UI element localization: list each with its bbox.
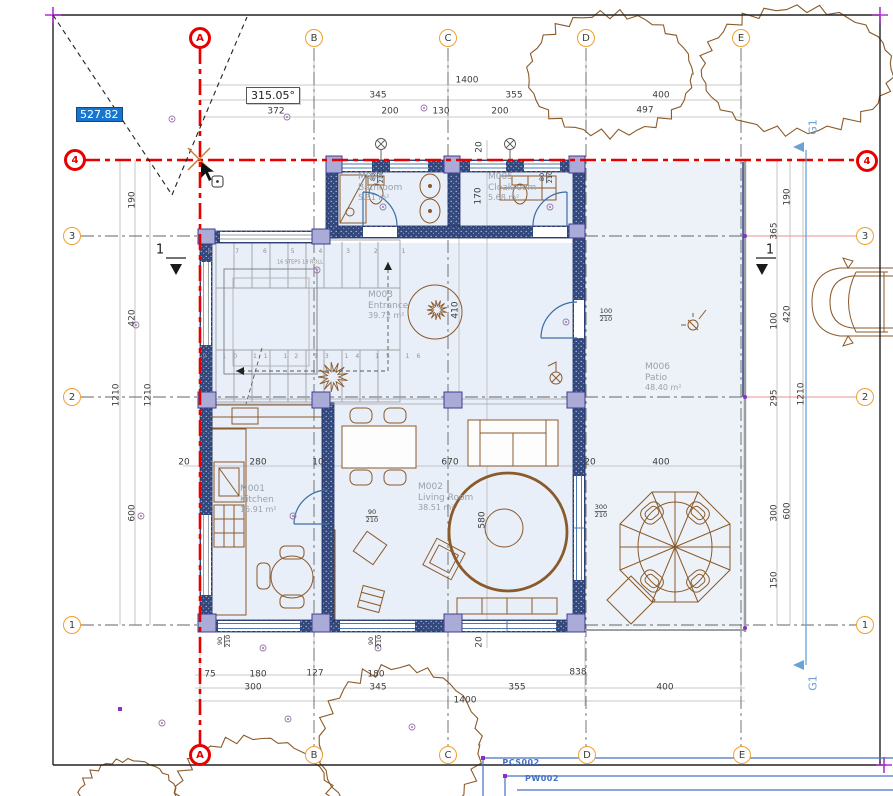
construction-label: PCS002 xyxy=(502,759,539,767)
dimension-label: 600 xyxy=(784,502,793,519)
room-label-M006: M006Patio48.40 m² xyxy=(645,362,681,393)
room-area: 5.31 m² xyxy=(358,193,402,202)
grid-bubble-B[interactable]: B xyxy=(305,29,323,47)
dimension-label: 10 xyxy=(312,459,323,468)
room-label-M002: M002Living Room38.51 m² xyxy=(418,482,473,513)
dimension-label: 300 xyxy=(244,684,261,693)
dimension-label: 20 xyxy=(476,141,485,152)
dimension-label: 580 xyxy=(479,511,488,528)
grid-line-label: G1 xyxy=(808,675,819,691)
grid-bubble-1[interactable]: 1 xyxy=(856,616,874,634)
dimension-label: 400 xyxy=(656,684,673,693)
dimension-label: 365 xyxy=(771,222,780,239)
dimension-label: 130 xyxy=(432,108,449,117)
dimension-label: 1400 xyxy=(456,77,479,86)
room-id: M004 xyxy=(358,172,402,183)
dimension-label: 497 xyxy=(636,107,653,116)
room-id: M001 xyxy=(240,484,276,495)
opening-size-label: 100210 xyxy=(600,308,612,324)
drawing-canvas[interactable]: 1400345355400372200130200497202801067020… xyxy=(0,0,893,796)
grid-bubble-D[interactable]: D xyxy=(578,746,596,764)
opening-size-label: 300210 xyxy=(595,504,607,520)
dimension-label: 838 xyxy=(569,669,586,678)
dimension-label: 200 xyxy=(381,108,398,117)
dimension-label: 410 xyxy=(452,301,461,318)
dimension-label: 372 xyxy=(267,108,284,117)
room-area: 38.51 m² xyxy=(418,503,473,512)
grid-bubble-A[interactable]: A xyxy=(189,27,211,49)
angle-input[interactable]: 315.05° xyxy=(246,87,300,104)
room-label-M003: M003Entrance39.72 m² xyxy=(368,290,408,321)
dimension-label: 1400 xyxy=(454,697,477,706)
grid-bubble-2[interactable]: 2 xyxy=(63,388,81,406)
room-name: Cloakroom xyxy=(488,183,536,194)
dimension-label: 420 xyxy=(129,309,138,326)
dimension-label: 280 xyxy=(249,459,266,468)
room-label-M001: M001Kitchen15.91 m² xyxy=(240,484,276,515)
stair-annotation: 8 7 6 5 4 3 2 1 xyxy=(208,249,417,255)
dimension-label: 345 xyxy=(369,92,386,101)
dimension-label: 300 xyxy=(771,504,780,521)
annotation-overlay: 1400345355400372200130200497202801067020… xyxy=(0,0,893,796)
construction-label: PW002 xyxy=(525,775,559,783)
dimension-label: 1210 xyxy=(113,384,122,407)
grid-bubble-E[interactable]: E xyxy=(732,29,750,47)
dimension-label: 600 xyxy=(129,504,138,521)
room-id: M002 xyxy=(418,482,473,493)
grid-bubble-A[interactable]: A xyxy=(189,744,211,766)
grid-bubble-E[interactable]: E xyxy=(733,746,751,764)
opening-size-label: 90210 xyxy=(217,635,233,647)
grid-bubble-4[interactable]: 4 xyxy=(64,149,86,171)
room-label-M005: M005Cloakroom5.68 m² xyxy=(488,172,536,203)
dimension-label: 180 xyxy=(249,671,266,680)
dimension-label: 127 xyxy=(306,670,323,679)
grid-bubble-3[interactable]: 3 xyxy=(63,227,81,245)
dimension-label: 355 xyxy=(505,92,522,101)
dimension-label: 20 xyxy=(178,459,189,468)
dimension-label: 180 xyxy=(367,671,384,680)
room-name: Bathroom xyxy=(358,183,402,194)
room-name: Entrance xyxy=(368,301,408,312)
room-area: 39.72 m² xyxy=(368,311,408,320)
room-id: M003 xyxy=(368,290,408,301)
room-name: Kitchen xyxy=(240,495,276,506)
opening-size-label: 90210 xyxy=(366,509,378,525)
dimension-label: 670 xyxy=(441,459,458,468)
room-name: Living Room xyxy=(418,493,473,504)
dimension-label: 355 xyxy=(508,684,525,693)
dimension-label: 75 xyxy=(204,671,215,680)
dimension-label: 190 xyxy=(784,188,793,205)
dimension-label: 420 xyxy=(784,305,793,322)
dimension-label: 400 xyxy=(652,459,669,468)
room-area: 5.68 m² xyxy=(488,193,536,202)
room-name: Patio xyxy=(645,373,681,384)
grid-bubble-2[interactable]: 2 xyxy=(856,388,874,406)
dimension-label: 295 xyxy=(771,389,780,406)
room-label-M004: M004Bathroom5.31 m² xyxy=(358,172,402,203)
dimension-label: 190 xyxy=(129,191,138,208)
length-input[interactable]: 527.82 xyxy=(76,107,123,122)
grid-bubble-C[interactable]: C xyxy=(439,746,457,764)
grid-bubble-D[interactable]: D xyxy=(577,29,595,47)
stair-annotation: 16 STEPS 18 ROLL xyxy=(277,261,323,266)
room-area: 15.91 m² xyxy=(240,505,276,514)
section-label: 1 xyxy=(766,244,774,257)
dimension-label: 400 xyxy=(652,92,669,101)
grid-bubble-3[interactable]: 3 xyxy=(856,227,874,245)
opening-size-label: 80210 xyxy=(539,171,555,183)
room-area: 48.40 m² xyxy=(645,383,681,392)
dimension-label: 345 xyxy=(369,684,386,693)
grid-bubble-C[interactable]: C xyxy=(439,29,457,47)
grid-bubble-4[interactable]: 4 xyxy=(856,150,878,172)
room-id: M006 xyxy=(645,362,681,373)
room-id: M005 xyxy=(488,172,536,183)
stair-annotation: 9 10 11 12 13 14 15 16 xyxy=(203,354,428,360)
dimension-label: 20 xyxy=(584,459,595,468)
dimension-label: 1210 xyxy=(798,383,807,406)
grid-line-label: G1 xyxy=(808,119,819,135)
dimension-label: 100 xyxy=(771,312,780,329)
grid-bubble-B[interactable]: B xyxy=(305,746,323,764)
dimension-label: 1210 xyxy=(145,384,154,407)
dimension-label: 200 xyxy=(491,108,508,117)
section-label: 1 xyxy=(156,244,164,257)
dimension-label: 20 xyxy=(476,636,485,647)
dimension-label: 170 xyxy=(475,187,484,204)
dimension-label: 150 xyxy=(771,571,780,588)
opening-size-label: 90210 xyxy=(368,635,384,647)
grid-bubble-1[interactable]: 1 xyxy=(63,616,81,634)
